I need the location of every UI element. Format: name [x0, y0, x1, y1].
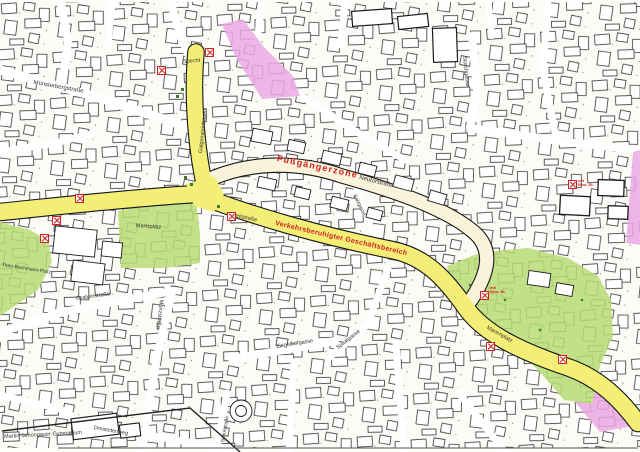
green-marktplatz [118, 200, 200, 268]
city-map-page: MünsterbergstraßeSpechtGalgensteinbogenF… [0, 0, 640, 452]
city-map-drawing [0, 0, 640, 452]
